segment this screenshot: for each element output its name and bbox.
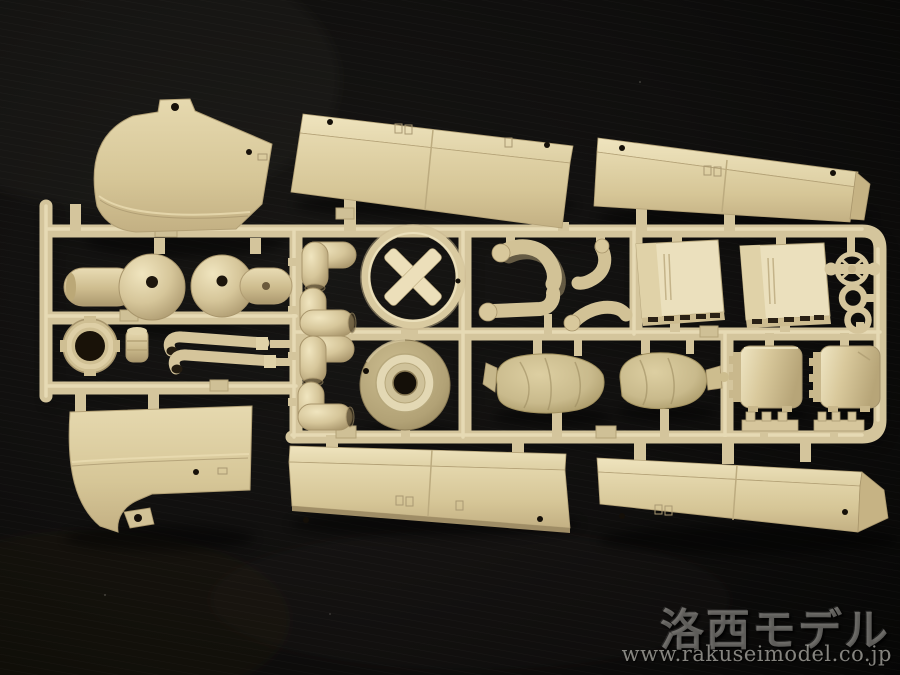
dust-speck: [104, 594, 106, 596]
panel-hole: [303, 517, 309, 523]
panel-hole: [830, 170, 836, 176]
fist: [479, 303, 497, 321]
panel-hole: [544, 142, 550, 148]
panel-hole: [619, 513, 625, 519]
panel-hole: [537, 516, 543, 522]
panel-hole: [327, 119, 333, 125]
watermark-url-text: www.rakuseimodel.co.jp: [622, 642, 892, 666]
panel-hole: [619, 145, 625, 151]
ring-pin-hole: [456, 279, 461, 284]
fender-hole: [246, 149, 252, 155]
ball-socket-hole: [146, 276, 158, 288]
ball-socket-hole: [217, 276, 228, 287]
hand: [595, 239, 609, 253]
fender-hole: [193, 469, 199, 475]
fender-hole: [134, 514, 142, 522]
part-small-barrel: [126, 327, 148, 362]
part-turret-ring-drum: [360, 340, 450, 430]
fender-hole: [171, 103, 179, 111]
hand: [564, 315, 580, 331]
fist: [492, 244, 510, 262]
photo-stage: 洛西モデル www.rakuseimodel.co.jp: [0, 0, 900, 675]
ring-hole: [75, 331, 105, 361]
dust-speck: [639, 81, 641, 83]
drum-center-hole: [393, 371, 417, 395]
part-flat-hatch-panel-2: [740, 243, 831, 328]
part-flat-hatch-panel-1: [636, 240, 725, 326]
panel-hole: [842, 509, 848, 515]
drum-pin-hole: [363, 368, 369, 374]
dust-speck: [329, 613, 331, 615]
sprue-photograph: [0, 0, 900, 675]
